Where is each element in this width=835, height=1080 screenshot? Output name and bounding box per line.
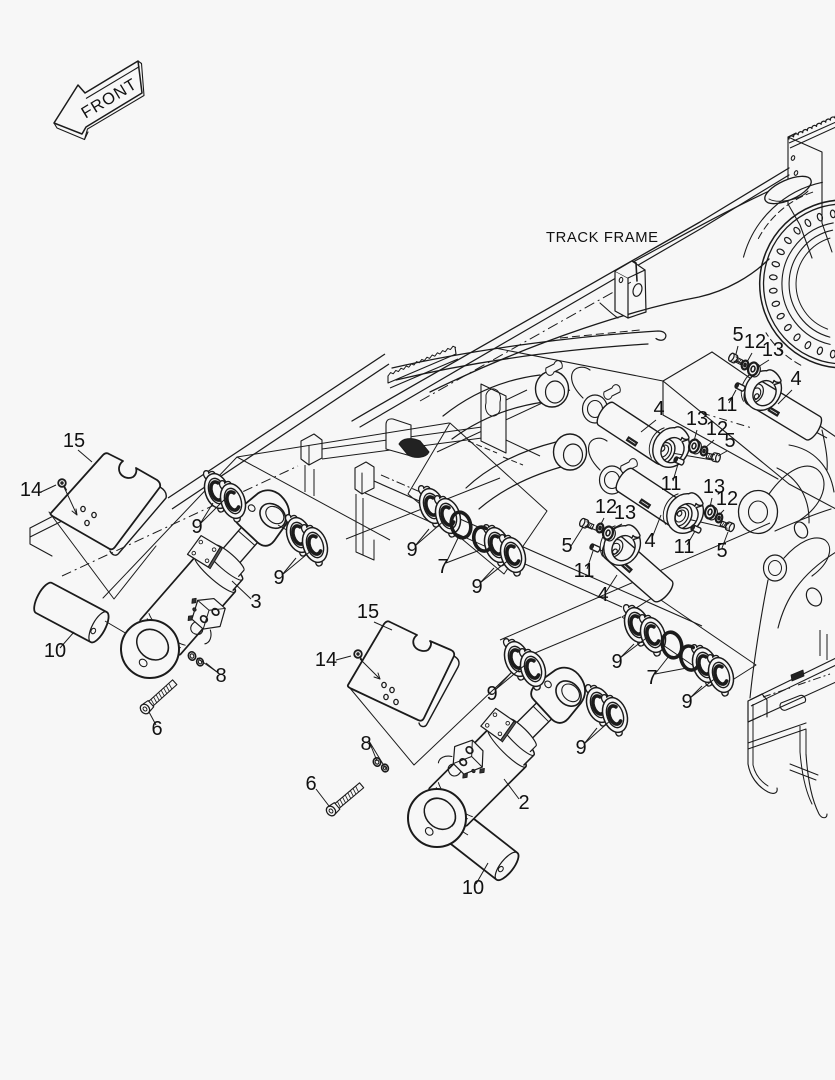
svg-text:11: 11 bbox=[717, 394, 738, 416]
svg-text:10: 10 bbox=[462, 877, 484, 899]
svg-text:9: 9 bbox=[191, 516, 202, 538]
svg-text:9: 9 bbox=[486, 683, 497, 705]
svg-text:5: 5 bbox=[561, 535, 572, 557]
svg-text:9: 9 bbox=[681, 691, 692, 713]
svg-text:13: 13 bbox=[614, 502, 636, 524]
svg-text:5: 5 bbox=[724, 430, 735, 452]
svg-text:9: 9 bbox=[471, 576, 482, 598]
svg-text:7: 7 bbox=[646, 667, 657, 689]
svg-text:9: 9 bbox=[575, 737, 586, 759]
svg-text:2: 2 bbox=[518, 792, 529, 814]
svg-text:9: 9 bbox=[611, 651, 622, 673]
svg-text:5: 5 bbox=[716, 540, 727, 562]
svg-text:8: 8 bbox=[215, 665, 226, 687]
svg-text:11: 11 bbox=[674, 536, 695, 558]
svg-text:4: 4 bbox=[790, 368, 801, 390]
svg-text:10: 10 bbox=[44, 640, 66, 662]
svg-text:12: 12 bbox=[716, 488, 738, 510]
svg-text:4: 4 bbox=[653, 398, 664, 420]
svg-text:4: 4 bbox=[644, 530, 655, 552]
svg-text:4: 4 bbox=[597, 584, 608, 606]
svg-text:6: 6 bbox=[151, 718, 162, 740]
svg-text:11: 11 bbox=[574, 560, 595, 582]
svg-text:14: 14 bbox=[315, 649, 337, 671]
svg-text:TRACK FRAME: TRACK FRAME bbox=[546, 230, 659, 246]
svg-text:13: 13 bbox=[762, 339, 784, 361]
svg-text:13: 13 bbox=[686, 408, 708, 430]
svg-text:9: 9 bbox=[273, 567, 284, 589]
svg-text:5: 5 bbox=[732, 324, 743, 346]
svg-text:3: 3 bbox=[250, 591, 261, 613]
svg-text:7: 7 bbox=[437, 556, 448, 578]
svg-text:15: 15 bbox=[357, 601, 379, 623]
svg-text:6: 6 bbox=[305, 773, 316, 795]
svg-text:8: 8 bbox=[360, 733, 371, 755]
svg-text:15: 15 bbox=[63, 430, 85, 452]
svg-text:14: 14 bbox=[20, 479, 42, 501]
svg-text:11: 11 bbox=[661, 473, 682, 495]
svg-text:9: 9 bbox=[406, 539, 417, 561]
